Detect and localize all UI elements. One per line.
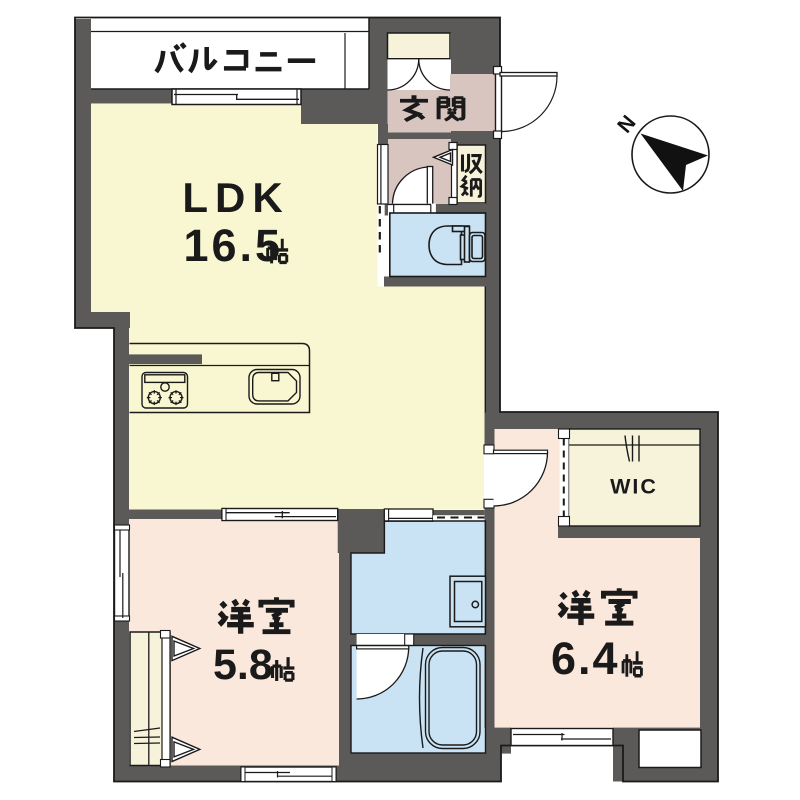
- svg-text:LDK: LDK: [182, 174, 289, 221]
- svg-text:16.5: 16.5: [184, 220, 284, 271]
- svg-text:5.8: 5.8: [213, 641, 273, 689]
- svg-text:6.4: 6.4: [551, 633, 620, 684]
- svg-text:WIC: WIC: [610, 475, 658, 499]
